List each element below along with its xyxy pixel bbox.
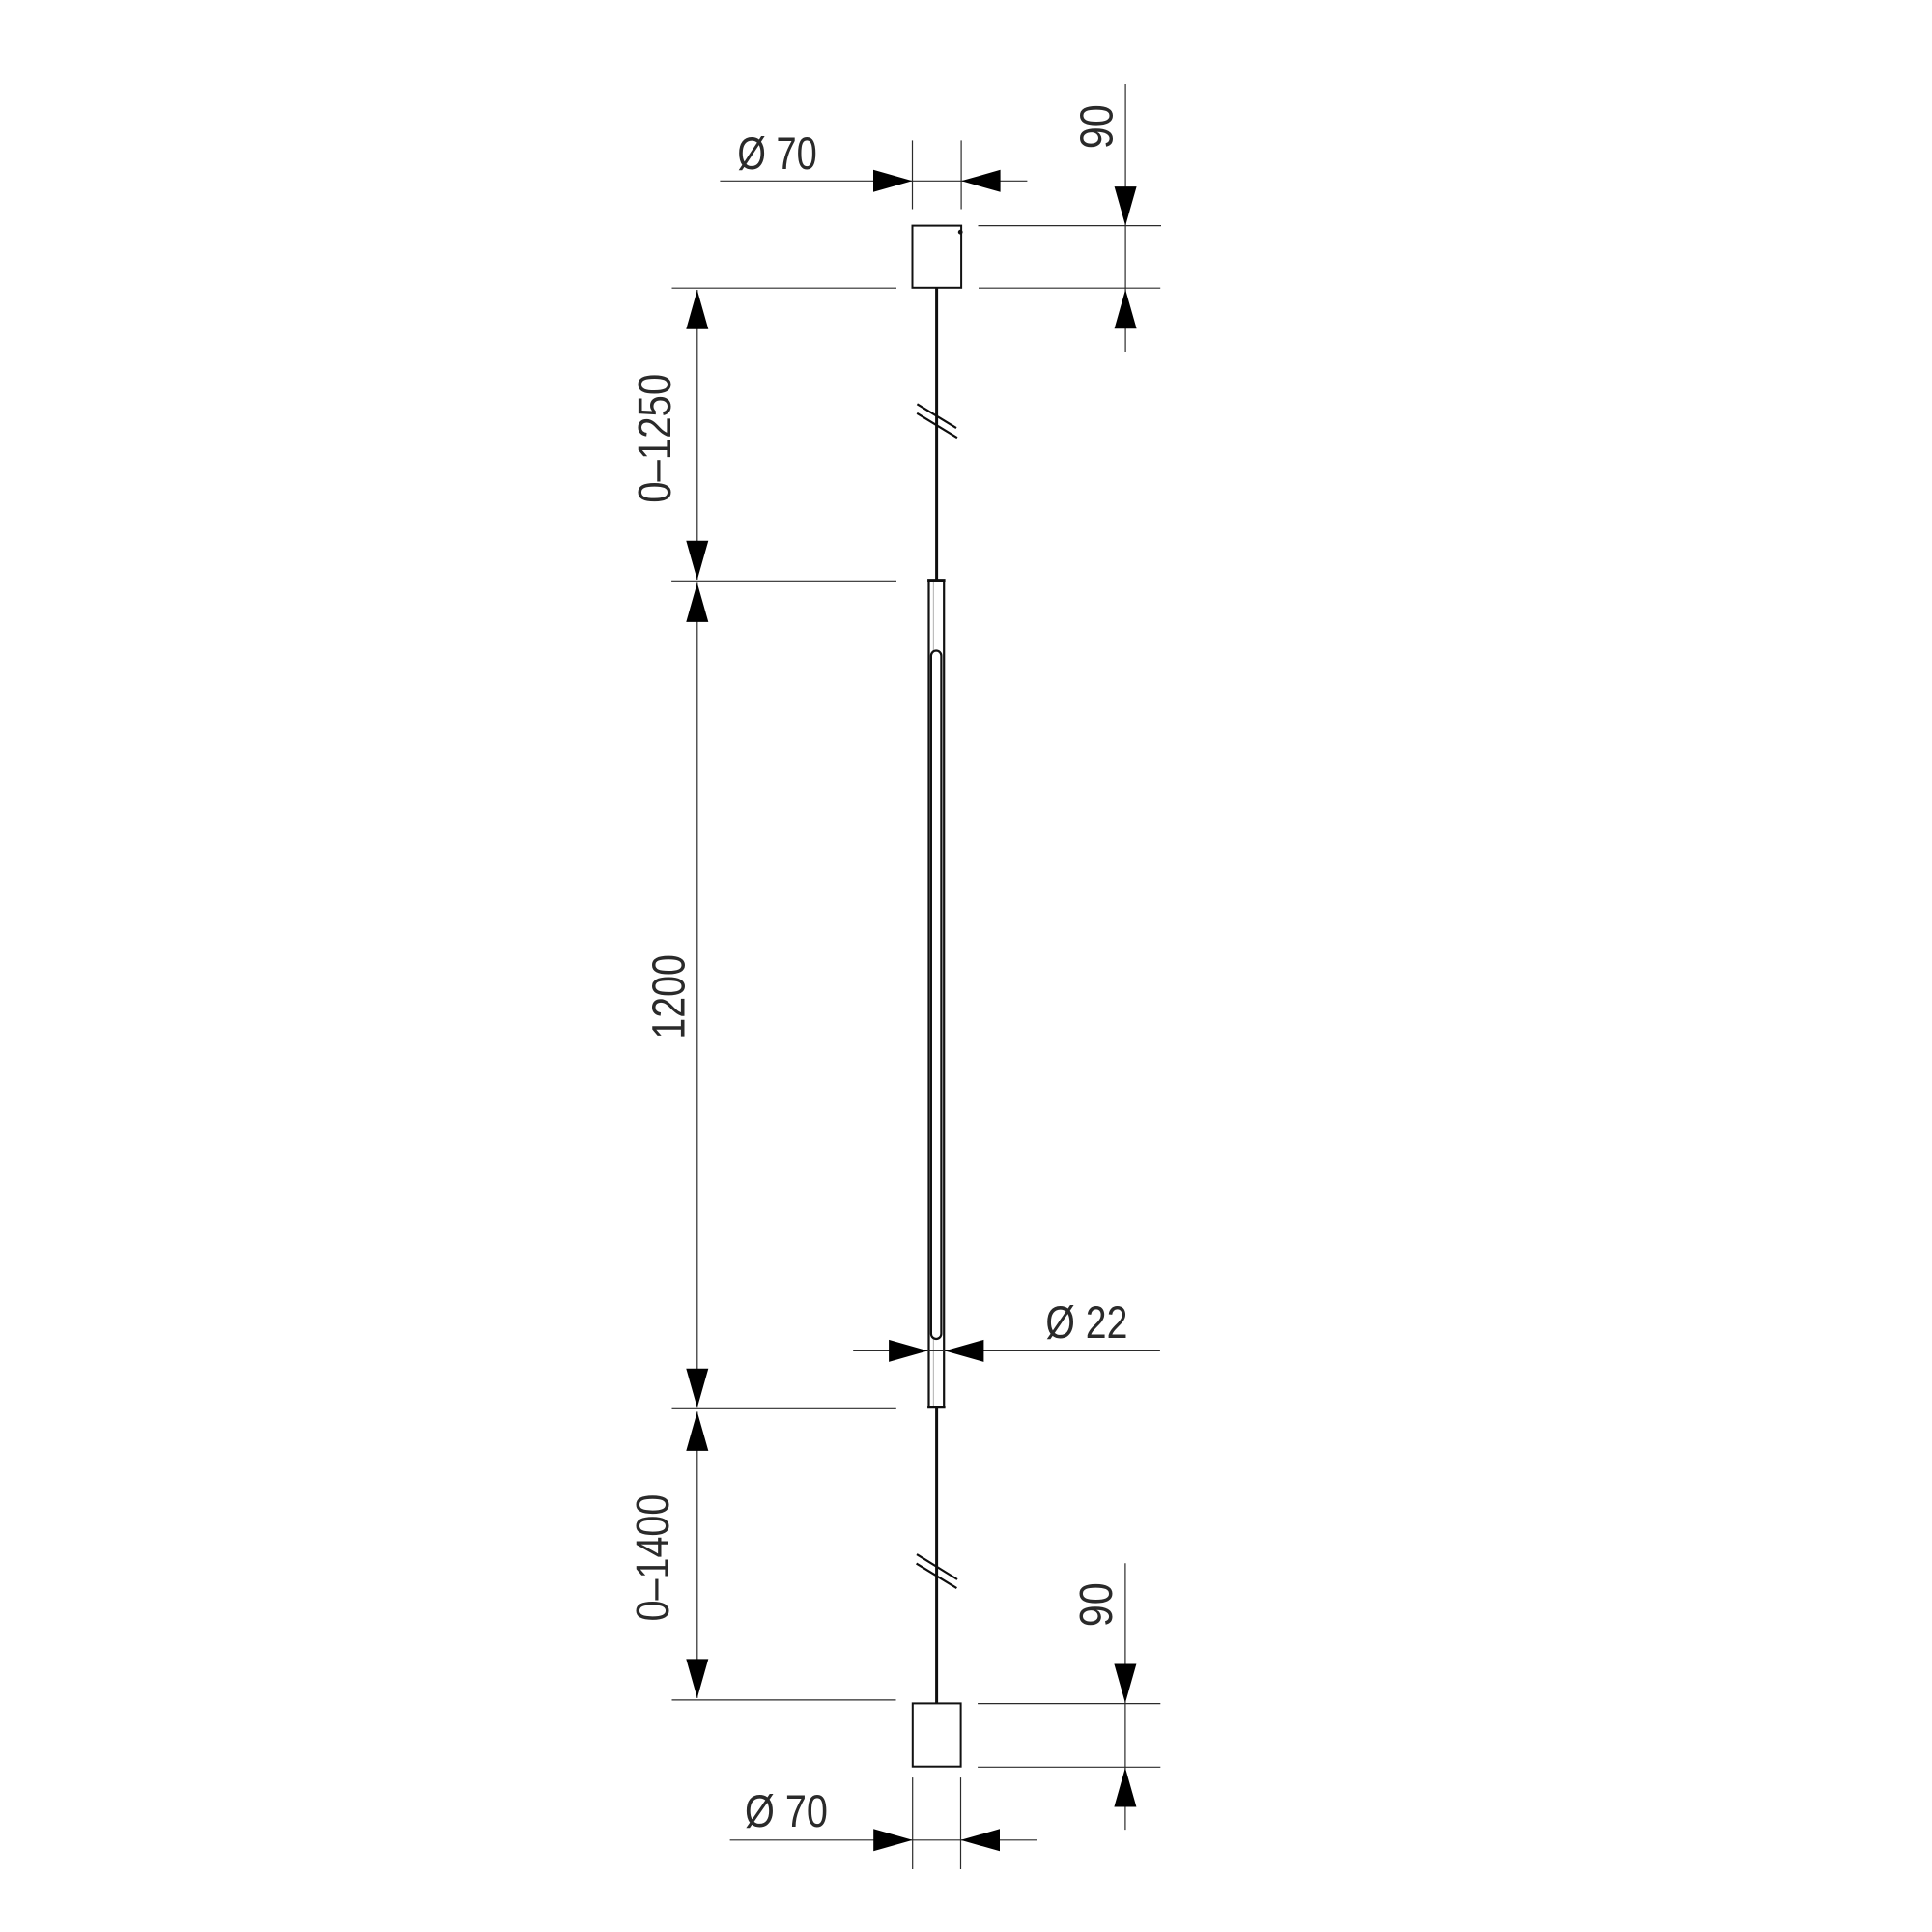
svg-text:Ø 70: Ø 70 — [745, 1785, 828, 1836]
svg-text:0–1400: 0–1400 — [627, 1494, 679, 1622]
svg-text:90: 90 — [1070, 1582, 1122, 1627]
svg-text:Ø 22: Ø 22 — [1045, 1296, 1127, 1348]
svg-text:1200: 1200 — [643, 954, 696, 1038]
svg-text:Ø 70: Ø 70 — [737, 128, 816, 179]
svg-text:0–1250: 0–1250 — [629, 374, 681, 503]
svg-text:90: 90 — [1071, 104, 1123, 149]
